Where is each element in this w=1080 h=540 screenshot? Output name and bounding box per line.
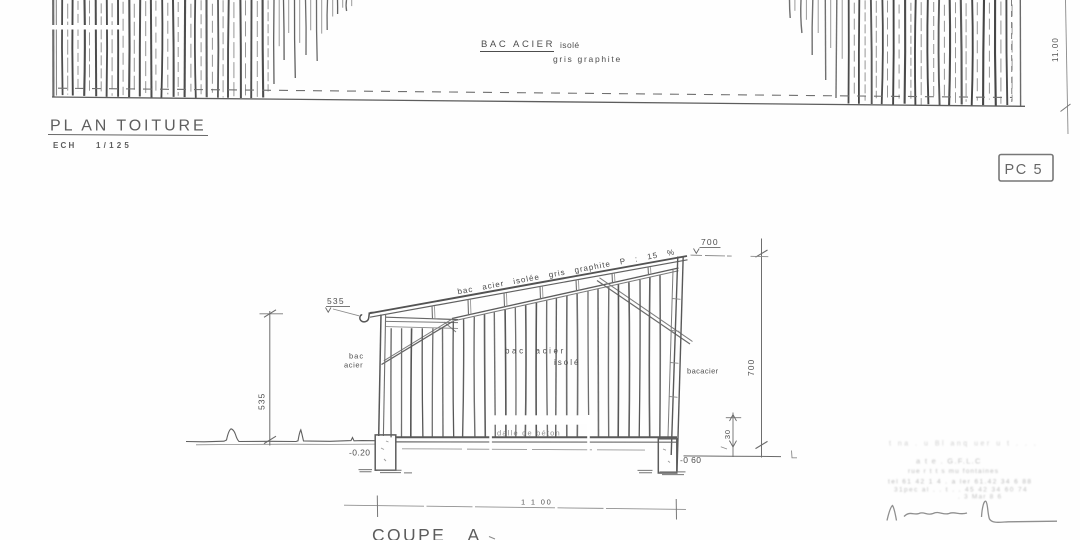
svg-text:700: 700	[746, 359, 756, 376]
svg-text:1/125: 1/125	[96, 141, 132, 150]
svg-text:acier: acier	[344, 361, 363, 370]
svg-text:700: 700	[701, 237, 719, 247]
svg-text:bacacier: bacacier	[687, 367, 719, 376]
svg-text:535: 535	[257, 393, 267, 410]
svg-text:-0 60: -0 60	[680, 455, 701, 465]
svg-text:ECH: ECH	[53, 141, 77, 150]
svg-text:isolé: isolé	[554, 358, 580, 367]
svg-text:BAC ACIER: BAC ACIER	[481, 39, 555, 50]
svg-text:bac: bac	[349, 352, 364, 361]
svg-text:.30: .30	[723, 429, 732, 442]
svg-text:rue r t t s mu fontaines: rue r t t s mu fontaines	[908, 468, 999, 475]
svg-text:. 3 Mar 8 6: . 3 Mar 8 6	[958, 494, 1002, 501]
svg-text:tel 61 42 1 4 . a ler 61.42 34: tel 61 42 1 4 . a ler 61.42 34 6 88	[888, 479, 1032, 486]
svg-text:11.00: 11.00	[1051, 37, 1060, 62]
svg-text:535: 535	[327, 296, 345, 306]
svg-text:a t e . G.F.L.C: a t e . G.F.L.C	[916, 457, 982, 466]
svg-text:A: A	[468, 525, 480, 540]
svg-text:t na . u Bl anq uer u t . .: t na . u Bl anq uer u t . . .	[889, 441, 1038, 448]
svg-text:PC 5: PC 5	[1005, 162, 1044, 178]
svg-text:bac acier isolée gris graphi: bac acier isolée gris graphite P : 15 %	[457, 247, 676, 296]
svg-text:gris graphite: gris graphite	[553, 54, 622, 64]
svg-text:isolé: isolé	[560, 40, 579, 50]
svg-text:COUPE: COUPE	[372, 525, 446, 540]
svg-text:dalle de béton: dalle de béton	[497, 429, 561, 438]
svg-text:-0.20: -0.20	[349, 448, 370, 458]
svg-text:bac acier: bac acier	[505, 347, 566, 356]
svg-text:1 1 00: 1 1 00	[521, 498, 553, 507]
svg-text:31pec al . . t . . 45 42 34 6: 31pec al . . t . . 45 42 34 60 74	[894, 487, 1028, 494]
svg-text:PL AN TOITURE: PL AN TOITURE	[50, 118, 207, 135]
